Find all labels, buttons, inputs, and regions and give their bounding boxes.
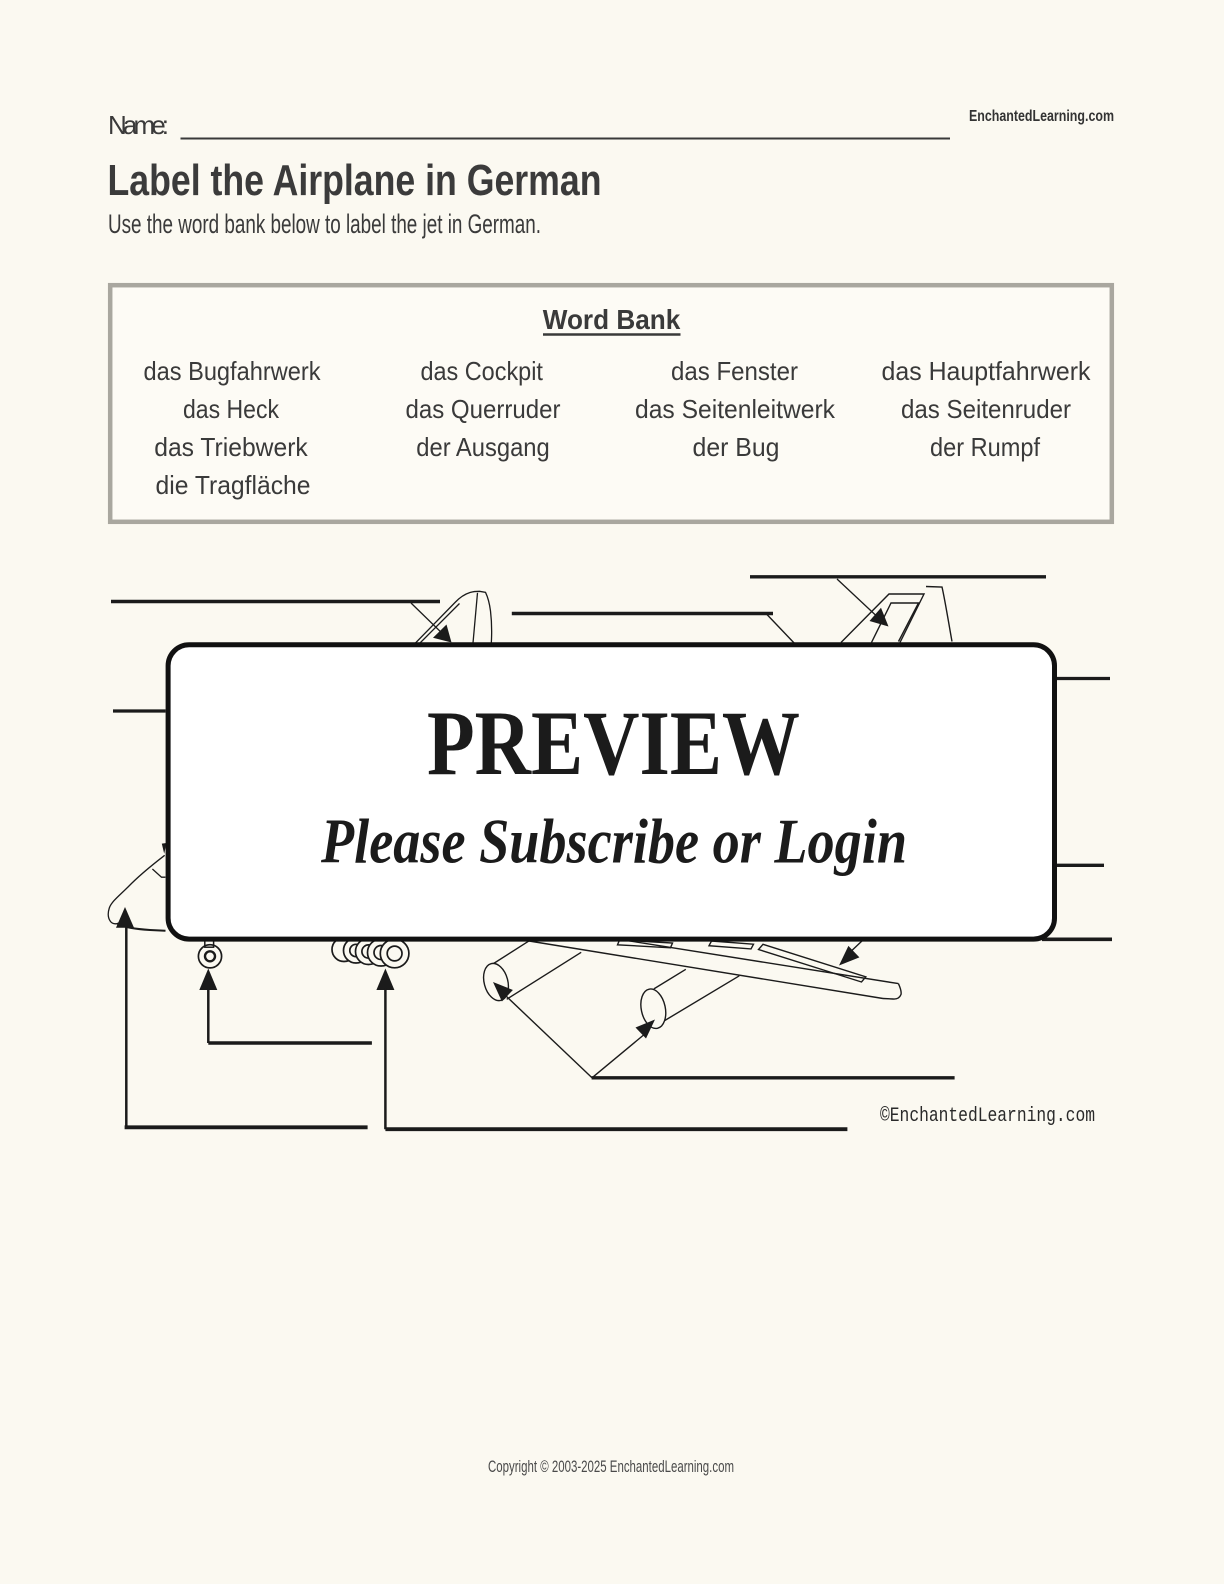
svg-text:das Heck: das Heck <box>183 394 280 424</box>
svg-text:der Bug: der Bug <box>693 432 780 462</box>
svg-text:PREVIEW: PREVIEW <box>427 692 800 794</box>
svg-text:EnchantedLearning.com: EnchantedLearning.com <box>969 108 1114 125</box>
svg-text:Label the Airplane in German: Label the Airplane in German <box>108 156 602 205</box>
svg-text:das Seitenruder: das Seitenruder <box>901 394 1071 424</box>
svg-text:das Hauptfahrwerk: das Hauptfahrwerk <box>882 356 1092 386</box>
svg-text:Please Subscribe or Login: Please Subscribe or Login <box>320 806 907 877</box>
svg-text:Use the word bank below to lab: Use the word bank below to label the jet… <box>108 209 541 239</box>
svg-text:das Triebwerk: das Triebwerk <box>154 432 308 462</box>
svg-text:Word Bank: Word Bank <box>543 304 681 335</box>
svg-text:Name:: Name: <box>108 110 169 140</box>
svg-text:das Cockpit: das Cockpit <box>420 356 543 386</box>
svg-text:der Ausgang: der Ausgang <box>416 432 550 462</box>
svg-text:Copyright © 2003-2025 Enchante: Copyright © 2003-2025 EnchantedLearning.… <box>488 1458 734 1476</box>
svg-text:die Tragfläche: die Tragfläche <box>156 470 311 500</box>
svg-text:das Seitenleitwerk: das Seitenleitwerk <box>635 394 836 424</box>
svg-text:der Rumpf: der Rumpf <box>930 432 1041 462</box>
svg-text:das Querruder: das Querruder <box>406 394 561 424</box>
svg-text:das Fenster: das Fenster <box>671 356 798 386</box>
svg-text:©EnchantedLearning.com: ©EnchantedLearning.com <box>880 1105 1095 1128</box>
svg-text:das Bugfahrwerk: das Bugfahrwerk <box>144 356 322 386</box>
